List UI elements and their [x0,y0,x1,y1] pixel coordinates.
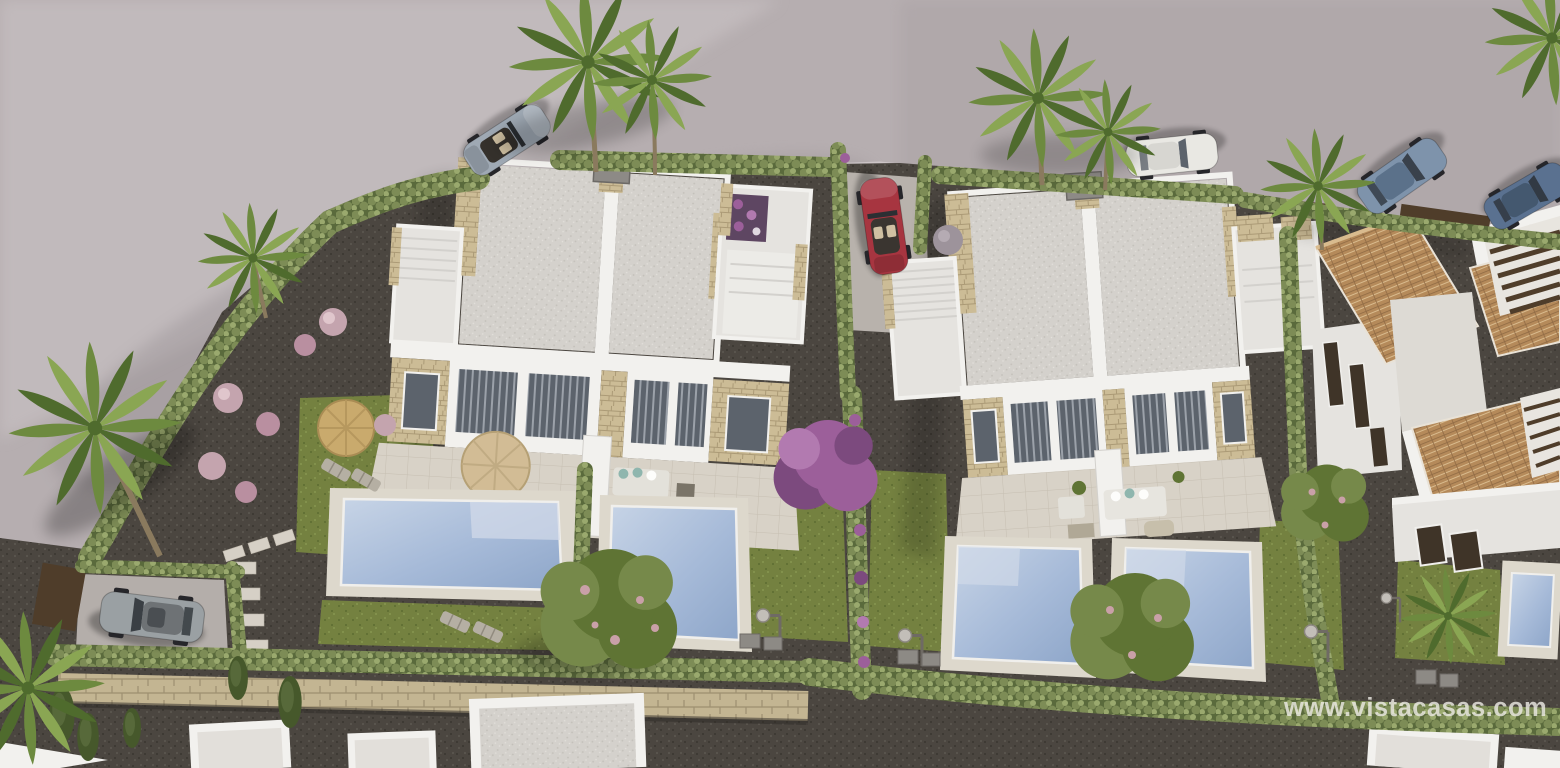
roof-terrace-stairs [881,258,964,399]
window [629,378,671,446]
window [673,381,709,449]
conifer [228,656,248,700]
window [454,367,520,437]
tree [1070,573,1194,681]
window [523,372,591,442]
lower-villa-roof [347,730,436,768]
window [1009,400,1053,465]
right-villa-roof [955,189,1094,385]
sofa [1103,486,1167,520]
pouf [1144,519,1175,537]
right-villa-roof [1094,179,1239,376]
tree [541,549,678,669]
pool-small-right [1498,560,1560,659]
window [1173,389,1211,453]
conifer [278,676,301,728]
left-villa-roof [609,173,724,359]
window [402,372,439,430]
window [1221,392,1246,443]
window [1449,530,1482,572]
render-viewport: www.vistacasas.com [0,0,1560,768]
lower-villa-roof [469,693,646,768]
hedge-driveway [920,162,925,248]
lower-villa-roof [189,719,291,768]
pool-steps [470,502,560,540]
window [971,410,999,464]
window [1415,524,1446,565]
stone-wall [58,688,808,706]
hedge-parking [232,568,240,652]
side-table [1068,523,1095,539]
planter [726,194,769,242]
tree [1281,465,1369,542]
hedge-parking [82,566,238,572]
roof-terrace-left [385,225,462,345]
scene-render: www.vistacasas.com [0,0,1560,768]
hedge-street [560,160,830,167]
sunroof [147,607,167,628]
bougainvillea-tree [774,420,878,511]
watermark: www.vistacasas.com [1283,694,1547,722]
armchair [1058,496,1085,520]
roof-terrace-right [712,183,811,342]
conifer [123,708,141,748]
courtyard [1390,292,1488,432]
window [725,396,770,452]
window [1131,392,1171,456]
hedge-driveway [838,150,848,395]
left-villa-roof [459,164,606,352]
